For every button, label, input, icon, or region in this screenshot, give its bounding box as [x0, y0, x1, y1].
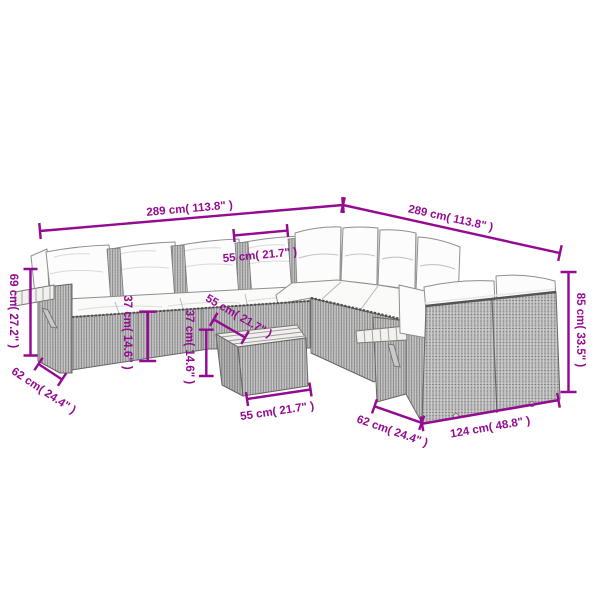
svg-text:85 cm( 33.5" ): 85 cm( 33.5" ) [574, 293, 586, 368]
svg-text:37 cm( 14.6" ): 37 cm( 14.6" ) [183, 310, 195, 385]
svg-text:37 cm( 14.6" ): 37 cm( 14.6" ) [121, 295, 133, 370]
svg-text:69 cm( 27.2" ): 69 cm( 27.2" ) [7, 274, 19, 349]
